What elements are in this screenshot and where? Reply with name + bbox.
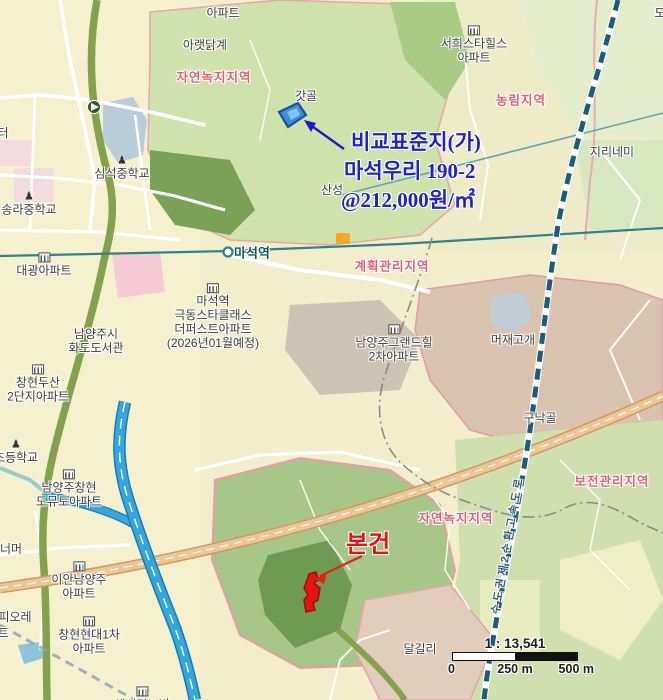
daegwang-apt-label: 대광아파트 [16, 252, 71, 277]
building-icon [73, 561, 85, 571]
domuto-apt-label: 남양주창현도뮤토아파트 [36, 469, 102, 508]
building-icon [83, 616, 95, 626]
jirinemi-label: 지리네미 [590, 145, 634, 159]
zone-natural-top-label: 자연녹지지역 [176, 71, 251, 86]
comparison-line3: @212,000원/㎡ [341, 186, 481, 215]
scale-tick-250: 250 m [497, 662, 532, 676]
building-icon [388, 324, 400, 334]
meojae-gogae-label: 머재고개 [491, 333, 535, 347]
simseok-middle-school-label: ♟심석중학교 [94, 155, 149, 180]
seohee-star-hills-label: 서희스타힐스아파트 [441, 25, 507, 64]
scale-ticks: 0 250 m 500 m [452, 661, 578, 677]
teu-partial-label: 트 [0, 626, 9, 640]
comparison-line2: 마석우리 190-2 [344, 157, 481, 186]
geukdong-starclass-label: 마석역극동스타클래스더퍼스트아파트(2026년01월예정) [167, 283, 259, 351]
do-partial-label: 도 [654, 6, 663, 20]
building-icon [207, 283, 219, 293]
apartment-top-label: 아파트 [206, 6, 239, 20]
zone-natural-bottom-label: 자연녹지지역 [418, 512, 493, 527]
comparison-line1: 비교표준지(가) [351, 128, 481, 157]
scale-bar-graphic [452, 652, 578, 661]
neomeo-partial-label: 너머 [0, 542, 22, 556]
scale-tick-0: 0 [448, 662, 455, 676]
building-icon [32, 364, 44, 374]
araetdakgye-label: 아랫닭계 [183, 38, 227, 52]
building-icon [136, 686, 148, 696]
gatgol-label: 갓골 [295, 89, 317, 103]
school-icon: ♟ [1, 191, 56, 201]
zone-bojeon-label: 보전관리지역 [574, 475, 649, 490]
comparison-annotation: 비교표준지(가) 마석우리 190-2 @212,000원/㎡ [341, 128, 481, 215]
songra-middle-school-label: ♟송라중학교 [1, 191, 56, 216]
elementary-school-partial-label: ♟초등학교 [0, 439, 38, 464]
bottom-apt-partial-label: 에시티노빌 [114, 686, 169, 700]
dalgilli-label: 달길리 [403, 642, 436, 656]
school-icon: ♟ [94, 155, 149, 165]
piore-partial-label: 피오레 [0, 610, 32, 624]
map-canvas[interactable]: 아파트아랫닭계자연녹지지역갓골서희스타힐스아파트농림지역지리네미도산성♟심석중학… [0, 0, 663, 700]
building-icon [63, 469, 75, 479]
zone-plan-mgmt-label: 계획관리지역 [354, 260, 429, 275]
sanseong-label: 산성 [321, 183, 343, 197]
changhyun-doosan-apt-label: 창현두산2단지아파트 [7, 364, 69, 403]
teo-partial-label: 터 [0, 126, 9, 140]
grandhill-apt-label: 남양주그랜드힐2차아파트 [355, 324, 432, 363]
ian-namyangju-apt-label: 이안남양주아파트 [51, 561, 106, 600]
label-layer: 아파트아랫닭계자연녹지지역갓골서희스타힐스아파트농림지역지리네미도산성♟심석중학… [0, 0, 663, 700]
building-icon [468, 25, 480, 35]
school-icon: ♟ [0, 439, 38, 449]
building-icon [38, 252, 50, 262]
zone-nonglim-label: 농림지역 [496, 94, 546, 109]
maseok-station-label: 마석역 [234, 245, 270, 260]
changhyun-hyundai-apt-label: 창현현대1차아파트 [58, 616, 120, 655]
subject-annotation: 본건 [346, 524, 390, 559]
scale-bar: 1 : 13,541 0 250 m 500 m [452, 636, 578, 677]
scale-ratio: 1 : 13,541 [452, 636, 578, 651]
gunakgol-label: 구낙골 [523, 411, 556, 425]
hwado-library-label: 남양주시화도도서관 [68, 327, 123, 355]
scale-tick-500: 500 m [559, 662, 594, 676]
